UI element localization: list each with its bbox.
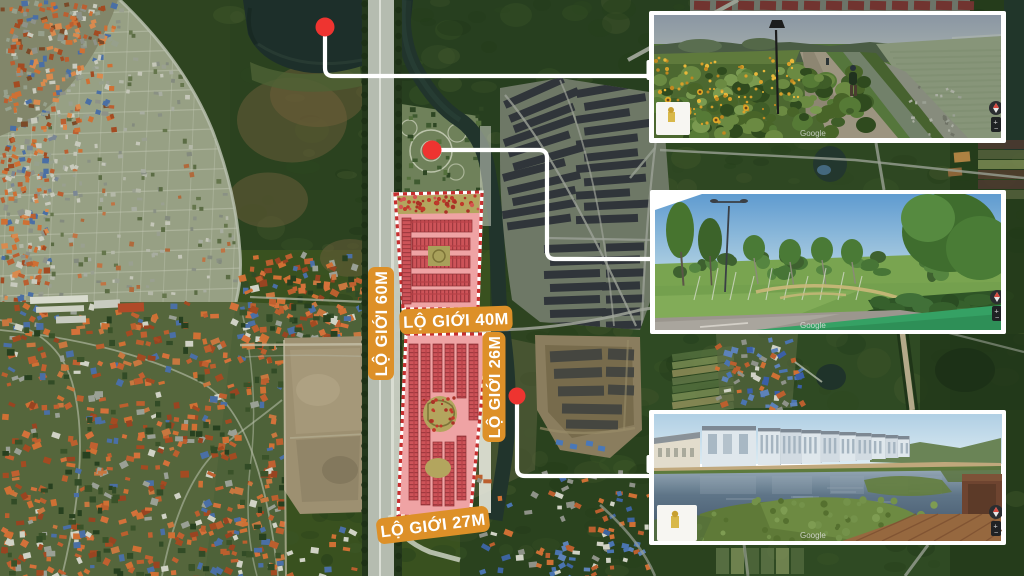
svg-text:Google: Google [800, 129, 826, 138]
svg-text:Google: Google [800, 531, 826, 540]
svg-text:LỘ GIỚI 26M: LỘ GIỚI 26M [485, 336, 504, 439]
svg-text:LỘ GIỚI 60M: LỘ GIỚI 60M [372, 271, 391, 377]
svg-text:Google: Google [800, 321, 826, 330]
svg-text:−: − [995, 313, 1000, 322]
svg-text:−: − [994, 528, 999, 537]
svg-text:−: − [994, 124, 999, 133]
svg-text:LỘ GIỚI 40M: LỘ GIỚI 40M [403, 309, 509, 332]
